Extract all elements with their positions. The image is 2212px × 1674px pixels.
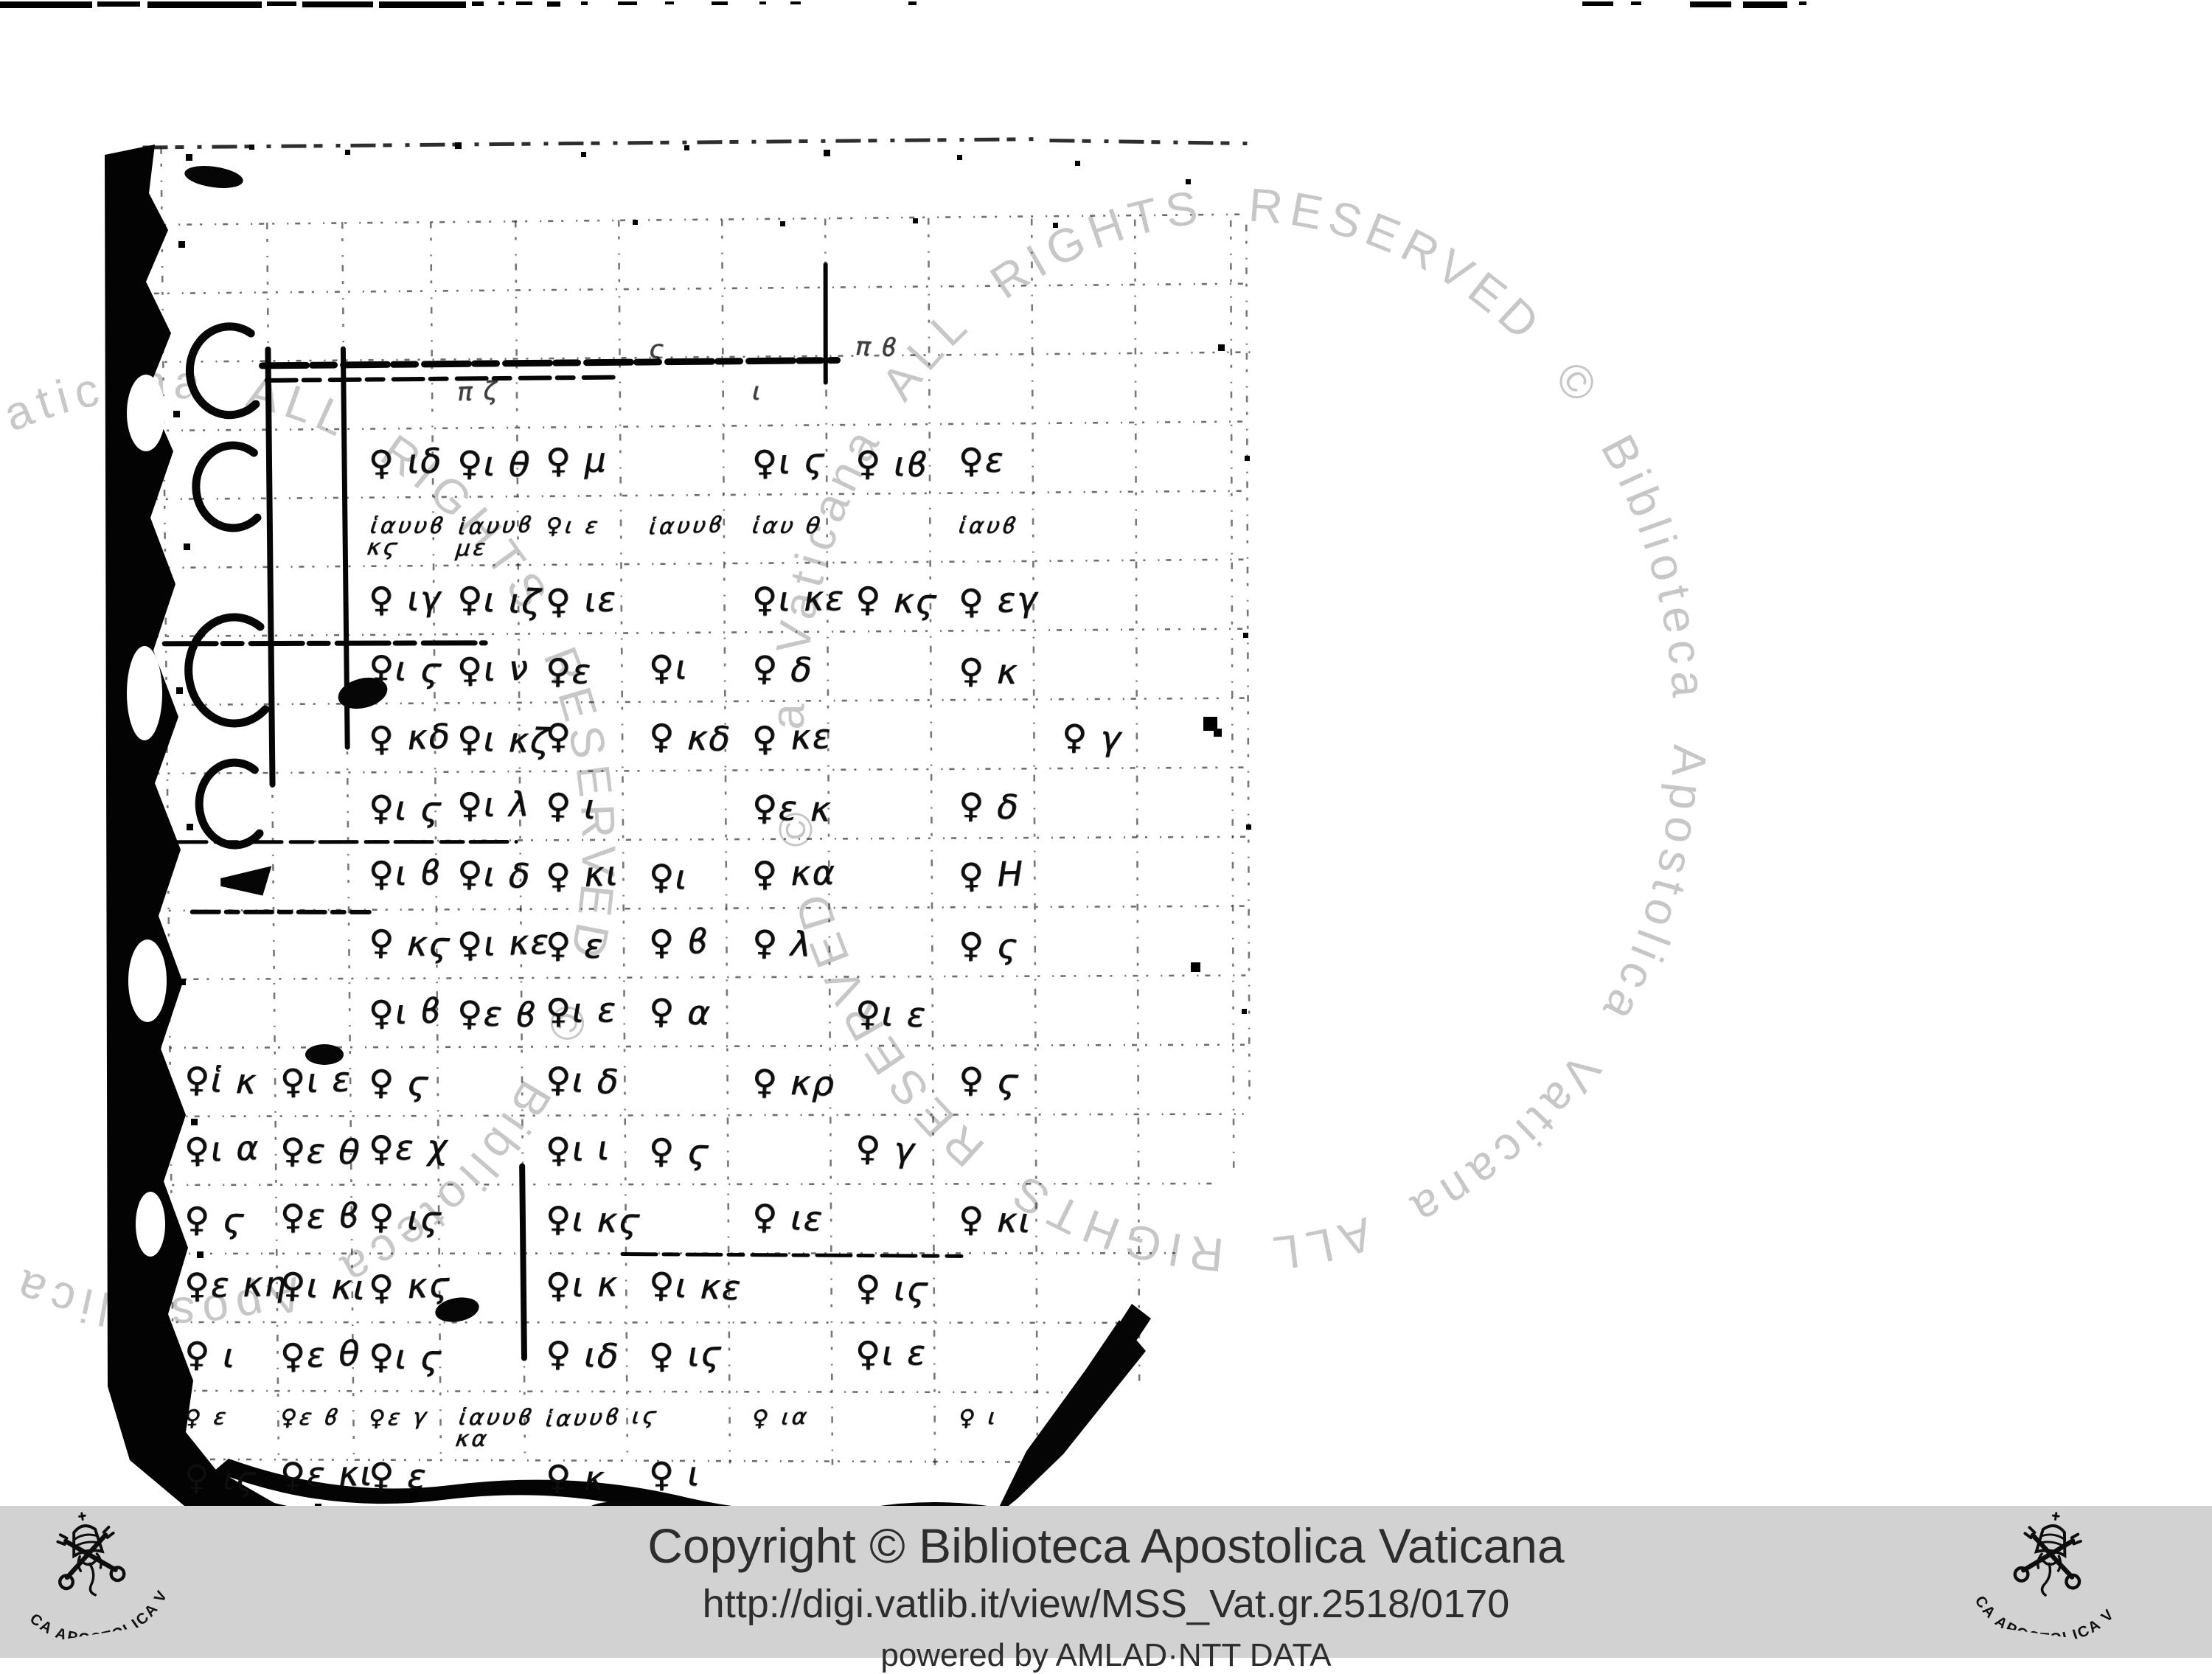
vatican-library-logo-right: BIBLIOTECA APOSTOLICA VATICANA: [1953, 1498, 2142, 1645]
manuscript-cell: ♀ α: [648, 995, 712, 1029]
manuscript-cell: ♀ι δ: [545, 1063, 620, 1099]
scan-artifact-mark: [665, 1, 674, 4]
manuscript-row: ♀ι ϛ♀ι λ♀ ι♀ε κ♀ δ: [103, 791, 1265, 857]
manuscript-cell: ♀ κι: [545, 858, 619, 892]
manuscript-cell: ♀ι κε: [648, 1268, 742, 1305]
manuscript-ink: ςπ ϐπ ζι♀ ιδ♀ι θ♀ μ♀ι ϛ♀ ιϐ♀εἱαυυϐ κϛἱαυ…: [103, 133, 1265, 1538]
manuscript-cell: ἱαυ θ: [751, 516, 824, 538]
manuscript-cell: ♀ι ϛ: [368, 652, 442, 687]
manuscript-cell: ♀ε χ: [369, 1131, 449, 1165]
scan-artifact-mark: [472, 1, 484, 6]
manuscript-cell: ♀ι κι: [279, 1269, 366, 1305]
manuscript-cell: ♀ ϛ: [648, 1135, 709, 1169]
manuscript-row: ♀ ιγ♀ι ιζ♀ ιε♀ι κε♀ κϛ♀ εγ: [103, 585, 1265, 651]
manuscript-cell: ♀ι λ: [457, 788, 531, 822]
manuscript-cell: ♀ι α: [184, 1132, 260, 1167]
manuscript-cell: ♀ι ε: [544, 516, 602, 538]
manuscript-cell: ♀ λ: [751, 926, 813, 961]
manuscript-row: ♀ ϛ♀ε ϐ♀ ιϛ♀ι κϛ♀ ιε♀ κι: [103, 1202, 1265, 1268]
manuscript-cell: ♀ ιϛ: [368, 1201, 442, 1236]
manuscript-cell: ἱαυυϐ ιϛ: [544, 1406, 659, 1431]
scan-artifact-mark: [1799, 1, 1806, 5]
manuscript-cell: ♀ι ϛ: [368, 792, 442, 826]
manuscript-cell: ♀ε κι: [280, 1458, 374, 1492]
manuscript-cell: ♀ κ: [958, 655, 1019, 689]
manuscript-cell: ♀ ιϐ: [855, 448, 929, 482]
scan-edge-artifact-strip: [0, 0, 2212, 13]
manuscript-cell: ♀ Η: [958, 858, 1025, 892]
scan-artifact-mark: [712, 1, 728, 5]
manuscript-cell: ♀ι ν: [456, 652, 529, 687]
scan-artifact-mark: [0, 1, 92, 8]
manuscript-cell: ἱαυυϐ με: [455, 515, 536, 560]
scan-artifact-mark: [379, 1, 466, 8]
manuscript-row: ♀ ιδ♀ι θ♀ μ♀ι ϛ♀ ιϐ♀ε: [103, 446, 1265, 513]
manuscript-row: ♀ι ϐ♀ι δ♀ κι♀ι♀ κα♀ Η: [103, 859, 1265, 925]
footer-url-text: http://digi.vatlib.it/view/MSS_Vat.gr.25…: [0, 1581, 2212, 1627]
scan-artifact-mark: [759, 1, 766, 4]
manuscript-cell: ♀ γ: [855, 1132, 916, 1167]
manuscript-cell: ♀ι ε: [855, 1337, 927, 1370]
manuscript-cell: π ϐ: [855, 335, 898, 361]
manuscript-cell: ♀ κα: [752, 857, 836, 891]
manuscript-cell: ♀ ε: [545, 929, 604, 963]
scan-artifact-mark: [147, 1, 262, 8]
scan-artifact-mark: [516, 1, 532, 5]
manuscript-cell: ♀ ε: [368, 1459, 428, 1493]
manuscript-cell: ♀ ε: [183, 1407, 229, 1430]
manuscript-cell: ♀ δ: [751, 652, 813, 687]
scan-artifact-mark: [1743, 1, 1787, 8]
manuscript-row: ♀ι ϛ♀ι ν♀ε♀ι♀ δ♀ κ: [103, 653, 1265, 720]
manuscript-cell: ♀ κ: [545, 1462, 606, 1496]
manuscript-cell: ♀ε θ: [279, 1338, 361, 1373]
manuscript-cell: ι: [751, 380, 762, 404]
manuscript-cell: ♀ μ: [546, 444, 608, 477]
manuscript-cell: ♀ ι: [184, 1338, 237, 1373]
manuscript-cell: ♀ εγ: [958, 583, 1039, 619]
manuscript-cell: ♀ἱ κ: [184, 1063, 258, 1099]
manuscript-cell: ♀ε θ: [279, 1134, 361, 1169]
manuscript-cell: ♀ι ϐ: [369, 857, 443, 890]
manuscript-cell: ♀ ιγ: [369, 583, 442, 616]
footer-copyright-text: Copyright © Biblioteca Apostolica Vatica…: [0, 1518, 2212, 1574]
manuscript-cell: ♀ι κζ: [456, 723, 550, 757]
scan-artifact-mark: [790, 1, 801, 4]
manuscript-row: ♀ κδ♀ι κζ♀♀ κδ♀ κε♀ γ: [103, 722, 1265, 788]
manuscript-cell: ♀ ια: [751, 1407, 810, 1430]
manuscript-cell: ♀ κι: [958, 1204, 1032, 1237]
manuscript-cell: ♀ κϛ: [368, 1269, 451, 1305]
manuscript-cell: ♀ ιϛ: [184, 1462, 257, 1496]
manuscript-cell: ♀ε ϐ: [280, 1200, 361, 1234]
manuscript-cell: ♀ι: [648, 861, 688, 894]
footer-powered-by-text: powered by AMLAD·NTT DATA: [0, 1637, 2212, 1674]
manuscript-row: π ζι: [103, 380, 1265, 446]
manuscript-row: ἱαυυϐ κϛἱαυυϐ με♀ι εἱαυυϐἱαυ θἱαυϐ: [103, 516, 1265, 583]
manuscript-row: ♀ι ϐ♀ε ϐ♀ι ε♀ α♀ι ε: [103, 996, 1265, 1063]
scan-artifact-mark: [302, 1, 373, 7]
manuscript-cell: ♀ε κη: [184, 1268, 288, 1302]
manuscript-cell: ἱαυυϐ κα: [454, 1408, 536, 1450]
manuscript-cell: ♀ι ϛ: [368, 1341, 442, 1375]
scan-artifact-mark: [498, 1, 504, 5]
manuscript-cell: ♀ ϐ: [649, 925, 710, 959]
manuscript-cell: ♀ι ε: [546, 994, 617, 1027]
manuscript-cell: ♀ ι: [545, 790, 598, 824]
scan-artifact-mark: [581, 1, 588, 5]
manuscript-row: ♀ε κη♀ι κι♀ κϛ♀ι κ♀ι κε♀ ιϛ: [103, 1271, 1265, 1337]
manuscript-cell: ς: [648, 338, 665, 362]
manuscript-cell: ♀ε: [959, 444, 1005, 477]
manuscript-cell: ♀ε κ: [751, 791, 832, 826]
manuscript-cell: ♀ ιε: [751, 1201, 824, 1236]
manuscript-row: ♀ι α♀ε θ♀ε χ♀ι ι♀ ϛ♀ γ: [103, 1133, 1265, 1200]
scan-artifact-mark: [1631, 1, 1641, 5]
manuscript-cell: ἱαυϐ: [957, 516, 1020, 538]
manuscript-cell: ♀ι κε: [456, 926, 550, 962]
manuscript-cell: ἱαυυϐ κϛ: [366, 516, 448, 558]
manuscript-cell: ♀ κϛ: [855, 583, 937, 619]
manuscript-cell: ♀ κρ: [751, 1066, 835, 1100]
manuscript-cell: ἱαυυϐ: [647, 515, 726, 538]
scan-artifact-mark: [267, 1, 296, 6]
scan-artifact-mark: [618, 1, 637, 5]
scan-viewer-page: { "watermark": { "color": "#c7c7c7", "ri…: [0, 0, 2212, 1658]
manuscript-cell: ♀ι θ: [456, 448, 531, 482]
manuscript-row: ♀ κϛ♀ι κε♀ ε♀ ϐ♀ λ♀ ς: [103, 928, 1265, 994]
manuscript-cell: ♀ι ε: [855, 998, 927, 1032]
manuscript-cell: ♀ δ: [958, 789, 1020, 824]
scan-artifact-mark: [1690, 1, 1731, 7]
manuscript-cell: ♀ε: [545, 655, 592, 688]
manuscript-cell: ♀ι κ: [546, 1268, 619, 1302]
manuscript-cell: ♀: [546, 720, 572, 753]
manuscript-cell: ♀ι ε: [279, 1063, 352, 1098]
manuscript-cell: ♀ ς: [958, 929, 1019, 963]
scan-artifact-mark: [908, 1, 917, 5]
manuscript-cell: ♀ι δ: [456, 858, 532, 893]
footer-band: Copyright © Biblioteca Apostolica Vatica…: [0, 1506, 2212, 1658]
manuscript-cell: ♀ κδ: [368, 720, 451, 756]
manuscript-cell: ♀ ιδ: [545, 1338, 620, 1373]
manuscript-cell: ♀ε γ: [367, 1407, 430, 1430]
manuscript-cell: ♀ ι: [957, 1407, 999, 1429]
scan-artifact-mark: [1582, 1, 1613, 6]
manuscript-cell: ♀ κϛ: [368, 926, 451, 962]
manuscript-cell: ♀ γ: [1061, 720, 1122, 755]
manuscript-cell: ♀ι ι: [545, 1132, 611, 1167]
manuscript-cell: ♀ι ιζ: [456, 583, 542, 619]
manuscript-row: ♀ἱ κ♀ι ε♀ ϛ♀ι δ♀ κρ♀ ϛ: [103, 1065, 1265, 1131]
manuscript-cell: π ζ: [456, 379, 498, 404]
scan-artifact-mark: [97, 1, 140, 7]
manuscript-cell: ♀ι ϛ: [751, 445, 825, 479]
manuscript-cell: ♀ ι: [649, 1458, 701, 1491]
manuscript-cell: ♀ κδ: [648, 720, 731, 756]
manuscript-cell: ♀ε ϐ: [279, 1408, 342, 1429]
manuscript-cell: ♀ ϛ: [958, 1063, 1019, 1098]
manuscript-cell: ♀ κε: [751, 720, 832, 756]
manuscript-scan: ςπ ϐπ ζι♀ ιδ♀ι θ♀ μ♀ι ϛ♀ ιϐ♀εἱαυυϐ κϛἱαυ…: [103, 133, 1265, 1538]
manuscript-cell: ♀ ιε: [545, 583, 617, 618]
manuscript-cell: ♀ι: [649, 652, 689, 685]
manuscript-cell: ♀ι κϛ: [545, 1203, 640, 1237]
manuscript-cell: ♀ ιϛ: [648, 1338, 722, 1372]
manuscript-cell: ♀ ιδ: [368, 445, 443, 479]
manuscript-cell: ♀ ϛ: [368, 1066, 429, 1100]
manuscript-cell: ♀ ϛ: [184, 1204, 245, 1237]
manuscript-cell: ♀ι κε: [752, 583, 846, 617]
manuscript-row: ♀ ι♀ε θ♀ι ϛ♀ ιδ♀ ιϛ♀ι ε: [103, 1339, 1265, 1406]
scan-artifact-mark: [547, 1, 560, 7]
manuscript-cell: ♀ ιϛ: [855, 1272, 928, 1306]
manuscript-cell: ♀ι ϐ: [368, 995, 443, 1029]
manuscript-cell: ♀ε ϐ: [456, 997, 538, 1032]
